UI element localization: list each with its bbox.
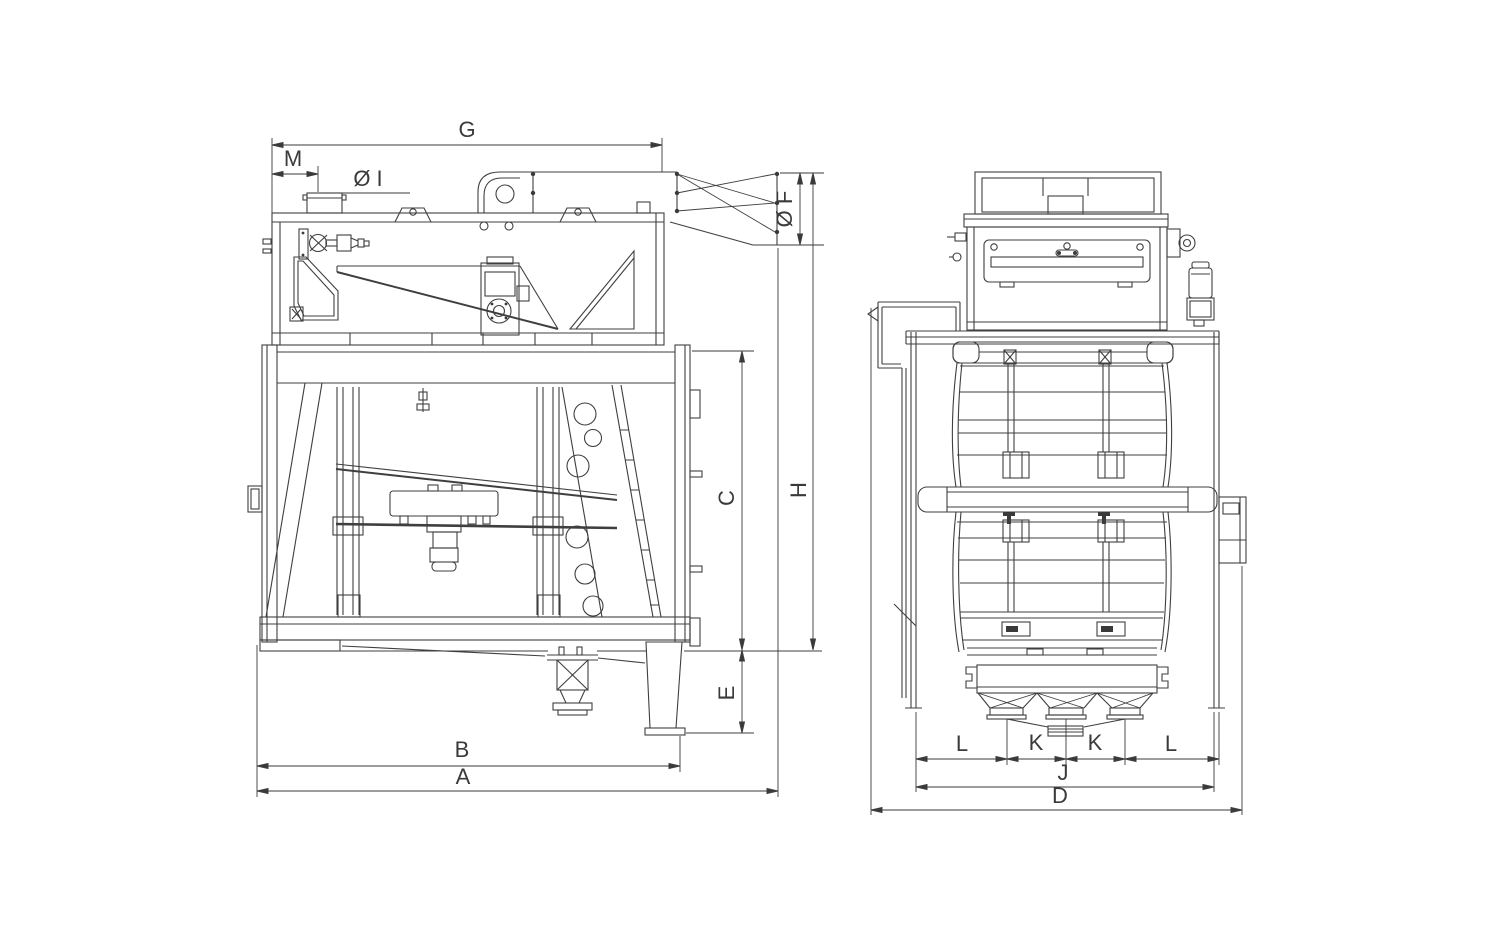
side-stand: [905, 331, 1225, 708]
dimension-d: D: [871, 308, 1242, 815]
dim-label-a: A: [456, 764, 471, 789]
dim-label-m: M: [284, 146, 302, 171]
front-inlet-pipe: [303, 193, 346, 213]
side-drive-motor: [1167, 229, 1214, 326]
side-outlet-funnels: [978, 693, 1153, 736]
side-view: [868, 172, 1246, 736]
dimension-g: G: [272, 117, 662, 213]
front-baffle: [570, 251, 634, 329]
side-housing: [947, 227, 1167, 330]
front-fan-duct: [395, 172, 677, 222]
dim-label-h: H: [786, 482, 811, 498]
dim-label-b: B: [455, 737, 470, 762]
side-aspiration-duct: [868, 302, 960, 698]
front-inlet-chute: [290, 257, 338, 321]
front-hanger-rods: [333, 387, 563, 617]
front-outlet-transition: [670, 172, 780, 245]
front-top-housing: [263, 213, 664, 345]
front-tray: [337, 266, 558, 329]
dim-label-i: Ø I: [353, 166, 382, 191]
dim-label-k-left: K: [1029, 730, 1044, 755]
dim-label-e: E: [714, 686, 739, 701]
dimension-c: C: [692, 351, 754, 650]
dim-label-f: Ø F: [772, 191, 797, 228]
drawing-canvas: G M Ø I Ø F H C E: [0, 0, 1500, 948]
dim-label-l-right: L: [1165, 731, 1177, 756]
front-center-funnel: [547, 647, 598, 715]
dimension-e: E: [714, 650, 742, 733]
dimension-a: A: [257, 248, 778, 797]
dim-label-c: C: [714, 490, 739, 506]
front-panel-holes: [566, 403, 603, 616]
technical-drawing-page: G M Ø I Ø F H C E: [0, 0, 1500, 948]
dim-label-j: J: [1058, 760, 1069, 785]
dimension-i: Ø I: [322, 166, 410, 193]
side-hopper: [964, 172, 1168, 227]
side-mount-bracket: [1219, 497, 1246, 563]
front-view: [248, 172, 822, 735]
dimension-f: Ø F: [772, 173, 824, 245]
dimension-m: M: [272, 146, 318, 192]
dim-label-g: G: [458, 117, 475, 142]
dim-label-d: D: [1052, 783, 1068, 808]
front-feeder-assembly: [299, 229, 369, 259]
front-vibration-drive: [390, 485, 498, 571]
side-screen-barrel: [918, 342, 1217, 655]
side-collection-pan: [966, 665, 1168, 693]
dim-label-l-left: L: [956, 731, 968, 756]
dim-label-k-right: K: [1088, 730, 1103, 755]
